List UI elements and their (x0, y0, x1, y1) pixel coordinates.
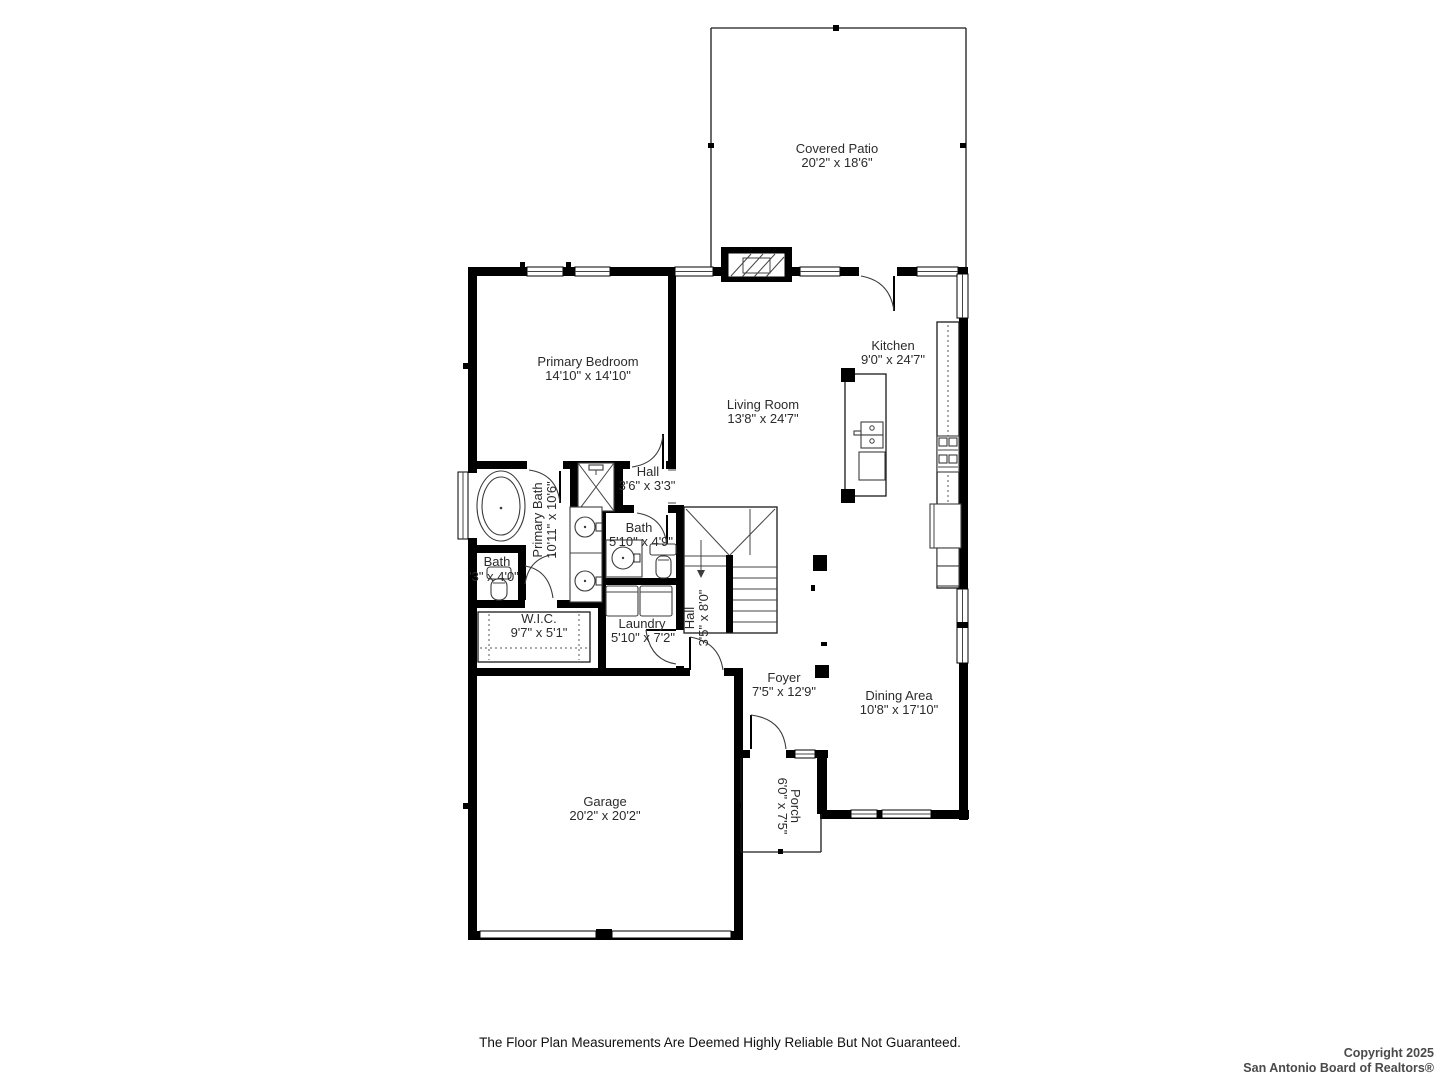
svg-text:Bath: Bath (484, 554, 511, 569)
small-bath-door (525, 554, 556, 598)
room-label-hall-lower: Hall 3'5" x 8'0" (682, 589, 711, 646)
room-label-primary-bath: Primary Bath 10'11" x 10'6" (530, 481, 559, 559)
floor-plan-page: Covered Patio 20'2" x 18'6" Primary Bedr… (0, 0, 1440, 1080)
svg-text:9'0" x 24'7": 9'0" x 24'7" (861, 352, 925, 367)
room-label-bath: Bath 5'10" x 4'9" (609, 520, 673, 549)
svg-text:Hall: Hall (637, 464, 660, 479)
floor-plan-drawing: Covered Patio 20'2" x 18'6" Primary Bedr… (0, 0, 1440, 1080)
svg-text:'3" x 4'0": '3" x 4'0" (469, 569, 519, 584)
room-label-covered-patio: Covered Patio 20'2" x 18'6" (796, 141, 878, 170)
patio-door (721, 247, 792, 282)
window (527, 267, 563, 276)
shower (578, 463, 614, 511)
room-label-garage: Garage 20'2" x 20'2" (569, 794, 641, 823)
window (795, 750, 815, 758)
svg-text:3'6" x 3'3": 3'6" x 3'3" (619, 478, 676, 493)
svg-text:Primary Bath: Primary Bath (530, 482, 545, 557)
svg-text:10'8" x 17'10": 10'8" x 17'10" (860, 702, 939, 717)
svg-text:5'10" x 4'9": 5'10" x 4'9" (609, 534, 673, 549)
svg-text:Foyer: Foyer (767, 670, 801, 685)
copyright-line2: San Antonio Board of Realtors® (1243, 1061, 1434, 1075)
copyright-line1: Copyright 2025 (1344, 1046, 1434, 1060)
kitchen-door (861, 276, 894, 311)
column-post (813, 555, 827, 571)
room-label-porch: Porch 6'0" x 7'5" (775, 778, 803, 835)
svg-text:13'8" x 24'7": 13'8" x 24'7" (727, 411, 799, 426)
room-label-wic: W.I.C. 9'7" x 5'1" (511, 611, 568, 640)
svg-text:Laundry: Laundry (619, 616, 666, 631)
room-label-living-room: Living Room 13'8" x 24'7" (727, 397, 799, 426)
svg-text:Covered Patio: Covered Patio (796, 141, 878, 156)
window (882, 810, 931, 818)
column-post (815, 665, 829, 678)
toilet (650, 544, 676, 578)
svg-text:20'2" x 20'2": 20'2" x 20'2" (569, 808, 641, 823)
window (957, 589, 968, 663)
window (575, 267, 610, 276)
garage-door (480, 929, 731, 940)
room-label-primary-bedroom: Primary Bedroom 14'10" x 14'10" (537, 354, 638, 383)
svg-text:Dining Area: Dining Area (865, 688, 933, 703)
window (800, 267, 840, 276)
kitchen-island (841, 368, 886, 503)
room-label-foyer: Foyer 7'5" x 12'9" (752, 670, 816, 699)
stair-direction-arrow (697, 570, 705, 578)
window (675, 267, 713, 276)
room-label-kitchen: Kitchen 9'0" x 24'7" (861, 338, 925, 367)
range (937, 436, 959, 472)
disclaimer-text: The Floor Plan Measurements Are Deemed H… (479, 1035, 961, 1050)
primary-vanity (570, 507, 602, 602)
room-labels: Covered Patio 20'2" x 18'6" Primary Bedr… (469, 141, 938, 835)
svg-text:Hall: Hall (682, 607, 697, 630)
svg-text:Primary Bedroom: Primary Bedroom (537, 354, 638, 369)
svg-text:6'0" x 7'5": 6'0" x 7'5" (775, 778, 790, 835)
svg-text:3'5" x 8'0": 3'5" x 8'0" (696, 589, 711, 646)
bathtub (477, 471, 525, 541)
room-label-dining: Dining Area 10'8" x 17'10" (860, 688, 939, 717)
svg-text:W.I.C.: W.I.C. (521, 611, 556, 626)
window (458, 472, 468, 539)
svg-text:Garage: Garage (583, 794, 626, 809)
window (957, 274, 968, 318)
refrigerator (930, 504, 961, 548)
svg-text:Living Room: Living Room (727, 397, 799, 412)
svg-text:Bath: Bath (626, 520, 653, 535)
svg-text:10'11" x 10'6": 10'11" x 10'6" (544, 481, 559, 559)
window (851, 810, 877, 818)
kitchen-counter (930, 322, 961, 588)
svg-text:20'2" x 18'6": 20'2" x 18'6" (801, 155, 873, 170)
washer-dryer (606, 586, 672, 616)
window (917, 267, 958, 276)
svg-text:7'5" x 12'9": 7'5" x 12'9" (752, 684, 816, 699)
svg-text:Kitchen: Kitchen (871, 338, 914, 353)
svg-text:14'10" x 14'10": 14'10" x 14'10" (545, 368, 631, 383)
svg-text:5'10" x 7'2": 5'10" x 7'2" (611, 630, 675, 645)
room-label-laundry: Laundry 5'10" x 7'2" (611, 616, 675, 645)
front-door (751, 715, 786, 749)
svg-text:9'7" x 5'1": 9'7" x 5'1" (511, 625, 568, 640)
